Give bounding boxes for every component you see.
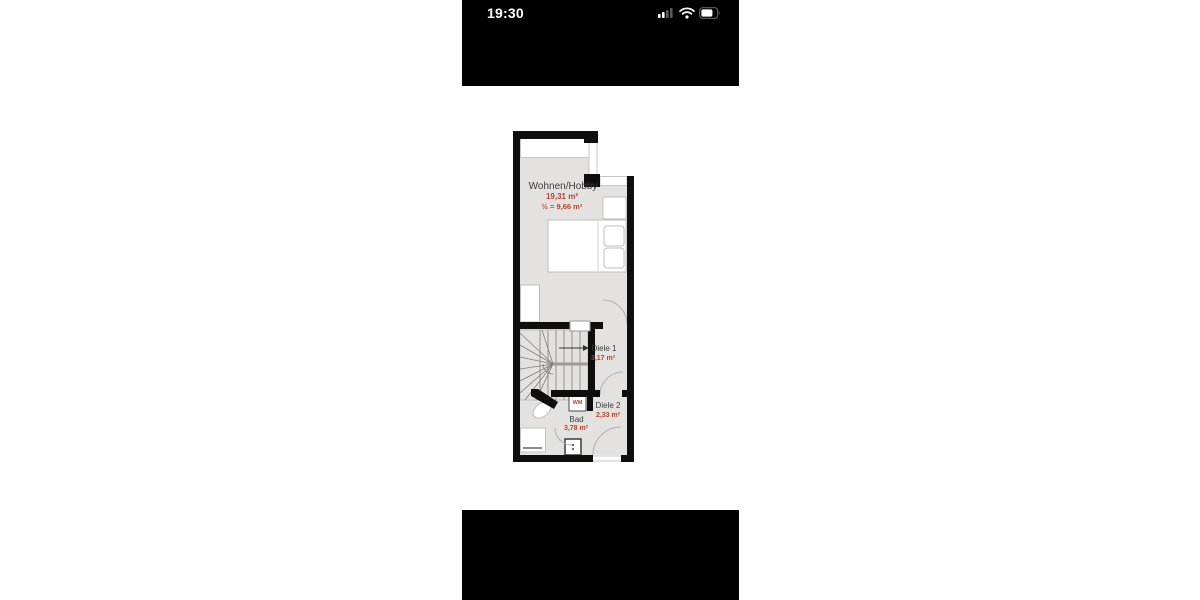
- room-label-diele2: Diele 2: [596, 402, 621, 411]
- floor-plan-image[interactable]: Wohnen/Hobby 19,31 m² ½ = 9,66 m² Diele …: [462, 86, 739, 510]
- radiator: [521, 285, 540, 322]
- room-label-wohnen: Wohnen/Hobby: [529, 181, 598, 192]
- window-right-horizontal: [600, 177, 627, 186]
- toilet: [565, 439, 581, 455]
- room-area-wohnen: 19,31 m²: [546, 193, 578, 202]
- door-leaf-wohnen: [570, 321, 590, 331]
- room-area-diele2: 2,33 m²: [596, 412, 620, 420]
- pillow: [604, 248, 624, 268]
- washing-machine-label: WM: [573, 400, 583, 406]
- phone-screenshot: 19:30: [462, 0, 739, 600]
- room-label-diele1: Diele 1: [592, 345, 617, 354]
- bottom-letterbox-bar: [462, 510, 739, 600]
- window-upper-right: [589, 139, 597, 175]
- room-label-bad: Bad: [569, 416, 583, 425]
- pillow: [604, 226, 624, 246]
- window-top: [521, 139, 590, 158]
- room-area-note-wohnen: ½ = 9,66 m²: [542, 203, 583, 211]
- room-area-diele1: 3,17 m²: [591, 355, 615, 363]
- shelf: [603, 197, 626, 219]
- room-area-bad: 3,78 m²: [564, 425, 588, 433]
